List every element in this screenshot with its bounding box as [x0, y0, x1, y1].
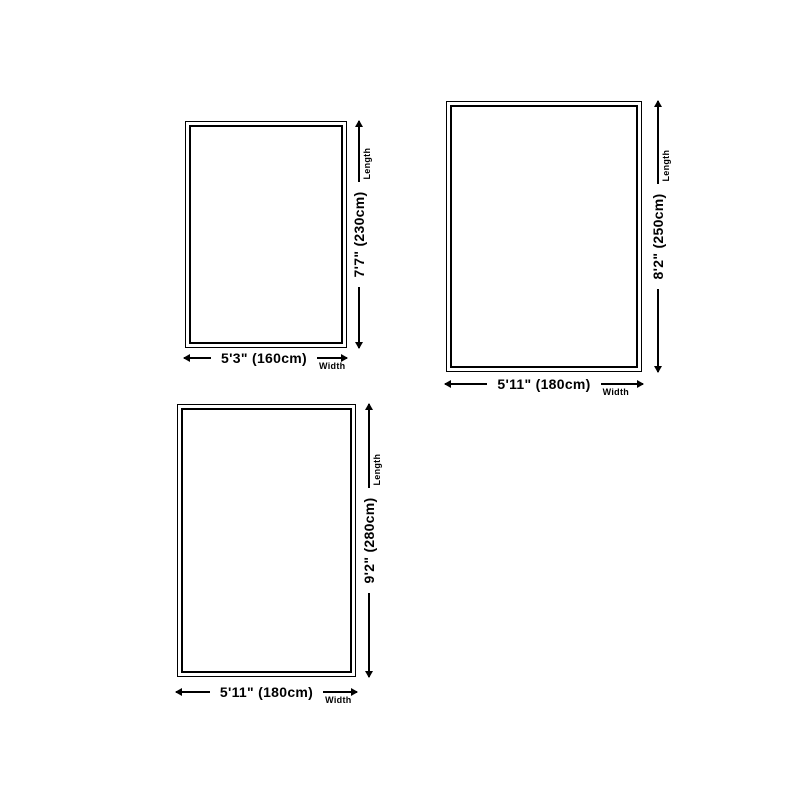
- rug-1-length-dimension: 7'7" (230cm) Length: [351, 121, 367, 348]
- rug-3-width-arrow-wrap: Width: [323, 684, 357, 700]
- rug-3-length-arrow-wrap: Length: [361, 404, 377, 488]
- rug-2-width-arrow-wrap: Width: [601, 376, 643, 392]
- rug-2-outline: [446, 101, 642, 372]
- arrow-down-icon: [368, 593, 370, 677]
- arrow-left-icon: [445, 383, 487, 385]
- rug-3-width-dimension: 5'11" (180cm) Width: [176, 684, 357, 700]
- rug-3-width-value: 5'11" (180cm): [220, 685, 313, 699]
- arrow-left-icon: [184, 357, 211, 359]
- rug-3-inner-border: [181, 408, 352, 673]
- arrow-left-icon: [176, 691, 210, 693]
- arrow-right-icon: [317, 357, 347, 359]
- rug-1-width-value: 5'3" (160cm): [221, 351, 307, 365]
- rug-2-length-value: 8'2" (250cm): [651, 194, 665, 280]
- arrow-right-icon: [323, 691, 357, 693]
- rug-2-length-arrow-wrap: Length: [650, 101, 666, 184]
- rug-1-inner-border: [189, 125, 343, 344]
- rug-3-width-axis-label: Width: [325, 696, 351, 705]
- rug-2-width-dimension: 5'11" (180cm) Width: [445, 376, 643, 392]
- rug-1-width-axis-label: Width: [319, 362, 345, 371]
- rug-3-outline: [177, 404, 356, 677]
- rug-1-outline: [185, 121, 347, 348]
- rug-1-length-value: 7'7" (230cm): [352, 192, 366, 278]
- rug-2-width-axis-label: Width: [603, 388, 629, 397]
- arrow-up-icon: [358, 121, 360, 182]
- arrow-up-icon: [368, 404, 370, 488]
- rug-2-width-value: 5'11" (180cm): [497, 377, 590, 391]
- arrow-down-icon: [358, 287, 360, 348]
- rug-1-length-arrow-wrap: Length: [351, 121, 367, 182]
- rug-3-length-axis-label: Length: [373, 454, 382, 486]
- arrow-right-icon: [601, 383, 643, 385]
- arrow-up-icon: [657, 101, 659, 184]
- rug-1-width-dimension: 5'3" (160cm) Width: [184, 350, 347, 366]
- rug-1-length-axis-label: Length: [363, 148, 372, 180]
- rug-1-width-arrow-wrap: Width: [317, 350, 347, 366]
- rug-2-length-axis-label: Length: [662, 150, 671, 182]
- rug-3-length-dimension: 9'2" (280cm) Length: [361, 404, 377, 677]
- rug-3-length-value: 9'2" (280cm): [362, 498, 376, 584]
- rug-2-inner-border: [450, 105, 638, 368]
- rug-2-length-dimension: 8'2" (250cm) Length: [650, 101, 666, 372]
- rug-size-guide-diagram: 5'3" (160cm) Width 7'7" (230cm) Length 5…: [0, 0, 800, 800]
- arrow-down-icon: [657, 289, 659, 372]
